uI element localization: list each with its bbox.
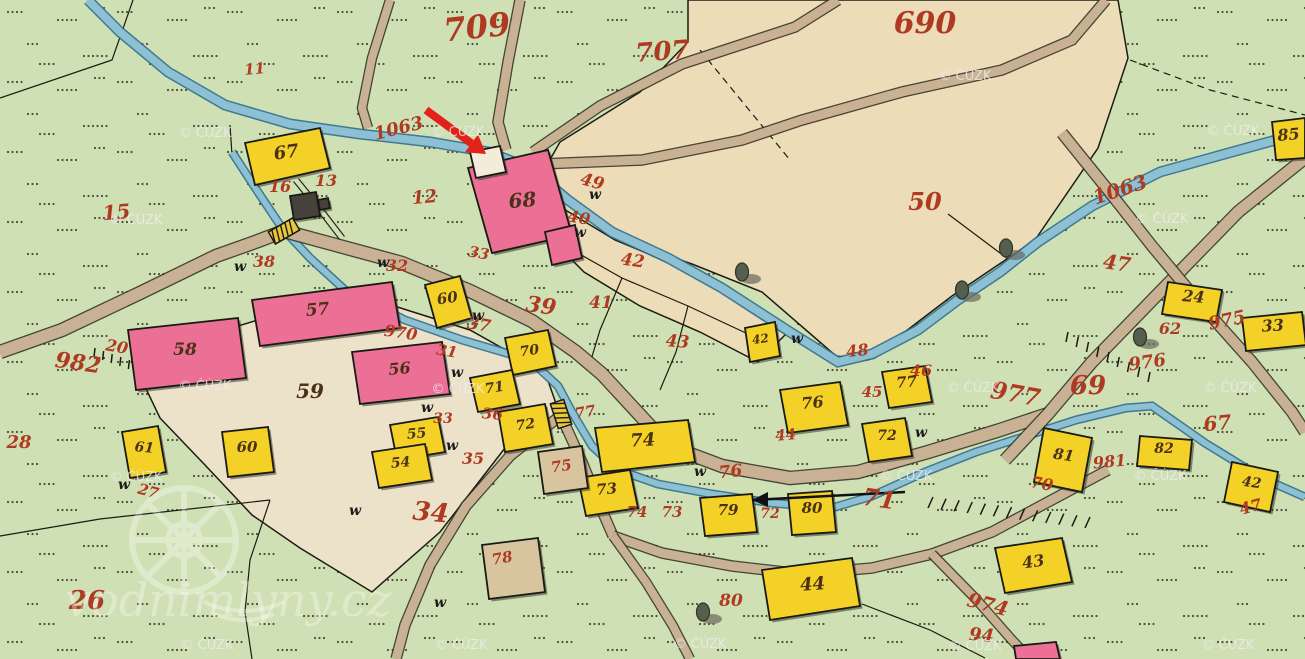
meadow-w-mark: w <box>446 438 459 454</box>
cuzk-watermark: © ČÚZK <box>110 212 163 228</box>
building-number-label: 43 <box>1021 551 1046 573</box>
building-tan <box>482 538 545 599</box>
building-number-label: 42 <box>1241 474 1263 493</box>
building-number-label: 79 <box>718 501 739 519</box>
parcel-number-label: 16 <box>269 177 291 196</box>
parcel-number-label: 62 <box>1159 319 1181 338</box>
building-number-label: 67 <box>272 140 300 164</box>
parcel-number-label: 31 <box>435 340 459 361</box>
parcel-number-label: 48 <box>845 340 869 361</box>
tree-symbol <box>697 603 710 621</box>
meadow-w-mark: w <box>349 503 362 519</box>
meadow-w-mark: w <box>915 425 928 441</box>
building-number-label: 60 <box>436 288 460 309</box>
parcel-number-label: 32 <box>386 256 408 275</box>
cuzk-watermark: © ČÚZK <box>179 125 232 141</box>
meadow-w-mark: w <box>377 255 390 271</box>
building-number-label: 74 <box>630 429 656 451</box>
cuzk-watermark: © ČÚZK <box>1202 637 1255 653</box>
parcel-number-label: 45 <box>862 383 883 401</box>
meadow-w-mark: w <box>694 464 707 480</box>
meadow-w-mark: w <box>574 225 587 241</box>
building-number-label: 76 <box>801 392 825 413</box>
site-watermark: vodnimlyny.cz <box>65 573 392 627</box>
building-number-label: 42 <box>751 331 769 347</box>
parcel-number-label: 69 <box>1070 371 1106 401</box>
tree-symbol <box>1000 239 1013 257</box>
building-number-label: 82 <box>1154 441 1174 457</box>
building-number-label: 57 <box>305 299 330 321</box>
cadastral-map-canvas: 7097076901110631063501516131238323349404… <box>0 0 1305 659</box>
cuzk-watermark: © ČÚZK <box>1207 123 1260 139</box>
parcel-number-label: 35 <box>462 449 484 468</box>
parcel-number-label: 41 <box>589 293 613 313</box>
meadow-w-mark: w <box>234 259 247 275</box>
building-number-label: 72 <box>515 416 537 435</box>
cuzk-watermark: © ČÚZK <box>1136 211 1189 227</box>
parcel-number-label: 50 <box>908 187 942 216</box>
cuzk-watermark: © ČÚZK <box>939 68 992 84</box>
parcel-number-label: 36 <box>481 404 504 424</box>
building-number-label: 60 <box>237 438 258 456</box>
parcel-number-label: 73 <box>662 503 683 521</box>
meadow-w-mark: w <box>589 187 602 203</box>
meadow-w-mark: w <box>421 400 434 416</box>
building-number-label: 77 <box>895 372 918 392</box>
parcel-number-label: 42 <box>620 249 646 272</box>
cuzk-watermark: © ČÚZK <box>435 637 488 653</box>
cuzk-watermark: © ČÚZK <box>432 381 485 397</box>
cuzk-watermark: © ČÚZK <box>880 468 933 484</box>
parcel-number-label: 39 <box>524 291 558 321</box>
parcel-number-label: 33 <box>433 411 453 427</box>
parcel-number-label: 78 <box>490 547 514 568</box>
cuzk-watermark: © ČÚZK <box>1134 468 1187 484</box>
building-dark <box>318 198 330 210</box>
parcel-number-label: 76 <box>718 461 744 483</box>
parcel-number-label: 44 <box>774 425 796 445</box>
cuzk-watermark: © ČÚZK <box>674 636 727 652</box>
cuzk-watermark: © ČÚZK <box>110 469 163 485</box>
parcel-number-label: 72 <box>760 506 780 522</box>
parcel-number-label: 67 <box>1202 410 1232 436</box>
building-number-label: 55 <box>406 425 427 443</box>
building-dark <box>290 192 320 220</box>
building-number-label: 54 <box>390 454 411 472</box>
parcel-number-label: 74 <box>627 503 648 521</box>
building-number-label: 68 <box>507 187 537 213</box>
building-number-label: 85 <box>1276 124 1301 145</box>
cuzk-watermark: © ČÚZK <box>181 637 234 653</box>
building-number-label: 81 <box>1052 445 1075 466</box>
building-number-label: 33 <box>1261 315 1284 335</box>
cadastral-map: 7097076901110631063501516131238323349404… <box>0 0 1305 659</box>
tree-symbol <box>1134 328 1147 346</box>
cuzk-watermark: © ČÚZK <box>949 638 1002 654</box>
parcel-number-label: 690 <box>894 6 957 41</box>
parcel-number-label: 43 <box>665 331 690 353</box>
tree-symbol <box>736 263 749 281</box>
parcel-number-label: 981 <box>1092 451 1127 473</box>
parcel-number-label: 11 <box>243 59 265 79</box>
parcel-number-label: 20 <box>103 335 129 358</box>
parcel-number-label: 70 <box>1029 472 1054 495</box>
building-number-label: 61 <box>134 439 155 457</box>
building-number-label: 59 <box>296 379 324 403</box>
cuzk-watermark: © ČÚZK <box>1204 380 1257 396</box>
meadow-w-mark: w <box>434 595 447 611</box>
parcel-number-label: 12 <box>411 186 438 209</box>
building-number-label: 80 <box>802 499 823 517</box>
cuzk-watermark: © ČÚZK <box>179 378 232 394</box>
parcel-number-label: 77 <box>573 401 597 422</box>
parcel-number-label: 34 <box>411 497 450 530</box>
building-number-label: 44 <box>799 573 825 596</box>
parcel-number-label: 71 <box>861 482 898 515</box>
cuzk-watermark: © ČÚZK <box>947 380 1000 396</box>
tree-symbol <box>956 281 969 299</box>
parcel-number-label: 47 <box>1102 249 1133 277</box>
parcel-number-label: 28 <box>5 432 32 453</box>
parcel-number-label: 707 <box>634 35 690 69</box>
parcel-number-label: 38 <box>253 252 275 271</box>
building-number-label: 24 <box>1181 286 1206 307</box>
meadow-w-mark: w <box>791 331 804 347</box>
building-number-label: 73 <box>595 479 617 499</box>
parcel-number-label: 75 <box>550 456 573 477</box>
parcel-number-label: 13 <box>315 171 337 190</box>
building-number-label: 72 <box>877 428 897 444</box>
building-number-label: 70 <box>519 342 541 361</box>
cuzk-watermark: © ČÚZK <box>432 124 485 140</box>
building-number-label: 58 <box>173 340 197 360</box>
meadow-w-mark: w <box>451 365 464 381</box>
parcel-number-label: 80 <box>718 591 743 611</box>
parcel-number-label: 33 <box>467 242 491 263</box>
building-number-label: 71 <box>484 379 506 398</box>
building-pink <box>1014 642 1060 659</box>
building-number-label: 56 <box>388 358 412 379</box>
parcel-number-label: 709 <box>442 5 512 50</box>
meadow-w-mark: w <box>472 308 485 324</box>
